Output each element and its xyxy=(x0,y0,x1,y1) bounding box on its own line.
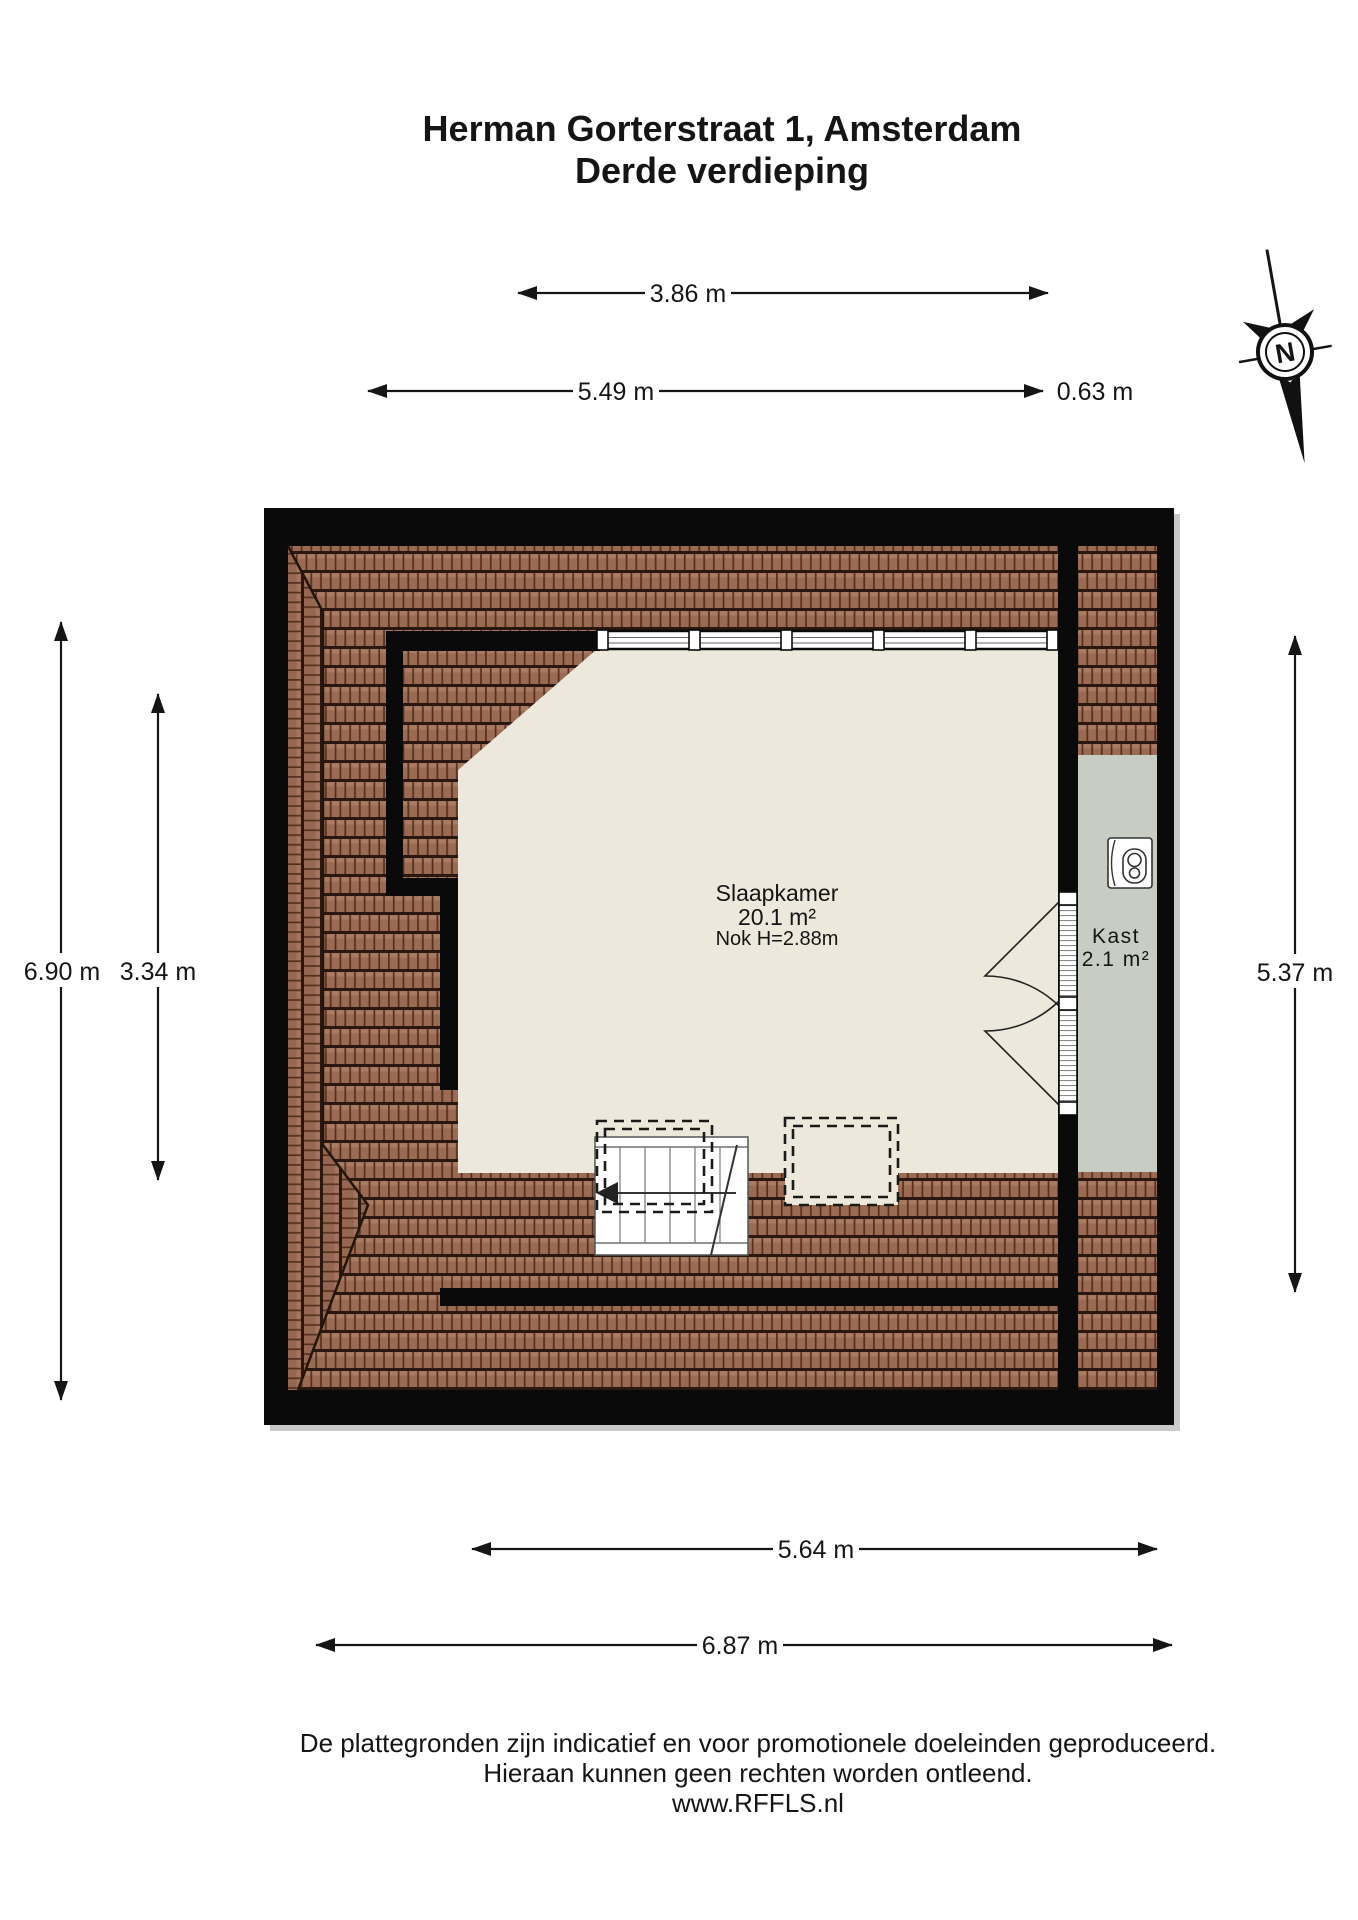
wall-west-upper xyxy=(386,631,403,896)
dim-label-6-90: 6.90 m xyxy=(24,958,100,986)
dim-label-5-49: 5.49 m xyxy=(578,378,654,406)
dim-label-3-34: 3.34 m xyxy=(120,958,196,986)
dim-label-5-37: 5.37 m xyxy=(1257,959,1333,987)
dim-bottom-outer: 6.87 m xyxy=(316,1629,1172,1661)
floorplan-canvas: Herman Gorterstraat 1, Amsterdam Derde v… xyxy=(0,0,1358,1920)
dim-bottom-inner: 5.64 m xyxy=(472,1533,1157,1565)
floorplan-page: Herman Gorterstraat 1, Amsterdam Derde v… xyxy=(0,0,1358,1920)
disclaimer: De plattegronden zijn indicatief en voor… xyxy=(300,1728,1216,1818)
dim-right: 5.37 m xyxy=(1254,636,1336,1292)
staircase xyxy=(595,1137,748,1255)
dim-top-outer: 5.49 m xyxy=(368,375,1043,407)
slaapkamer-ridge-height: Nok H=2.88m xyxy=(716,928,839,950)
title-address: Herman Gorterstraat 1, Amsterdam xyxy=(423,108,1022,149)
dim-label-3-86: 3.86 m xyxy=(650,280,726,308)
wall-west-jog xyxy=(386,878,458,896)
page-title: Herman Gorterstraat 1, Amsterdam Derde v… xyxy=(423,108,1022,191)
compass-south-needle xyxy=(1278,371,1316,465)
dim-left-inner: 3.34 m xyxy=(118,694,198,1180)
disclaimer-line-2: Hieraan kunnen geen rechten worden ontle… xyxy=(483,1758,1032,1788)
title-floor: Derde verdieping xyxy=(575,150,869,191)
dim-label-6-87: 6.87 m xyxy=(702,1632,778,1660)
dim-top-inner: 3.86 m xyxy=(518,277,1048,309)
dormer-zone-fill-right xyxy=(785,1118,898,1205)
slaapkamer-area: 20.1 m² xyxy=(738,904,816,930)
kast-name: Kast xyxy=(1092,925,1140,948)
wall-west-lower xyxy=(440,896,458,1090)
compass-rose: N xyxy=(1221,241,1351,471)
kast-area: 2.1 m² xyxy=(1082,948,1151,971)
dim-left-outer: 6.90 m xyxy=(22,622,102,1400)
slaapkamer-name: Slaapkamer xyxy=(716,880,839,906)
disclaimer-website: www.RFFLS.nl xyxy=(671,1788,844,1818)
boiler-icon xyxy=(1108,838,1152,888)
disclaimer-line-1: De plattegronden zijn indicatief en voor… xyxy=(300,1728,1216,1758)
ribbon-window xyxy=(597,630,1058,650)
wall-north-west-segment xyxy=(386,631,600,651)
dim-label-5-64: 5.64 m xyxy=(778,1536,854,1564)
wall-south xyxy=(440,1288,1078,1306)
floor-plan: Slaapkamer 20.1 m² Nok H=2.88m Kast 2.1 … xyxy=(264,508,1180,1431)
dim-label-0-63: 0.63 m xyxy=(1057,378,1133,406)
